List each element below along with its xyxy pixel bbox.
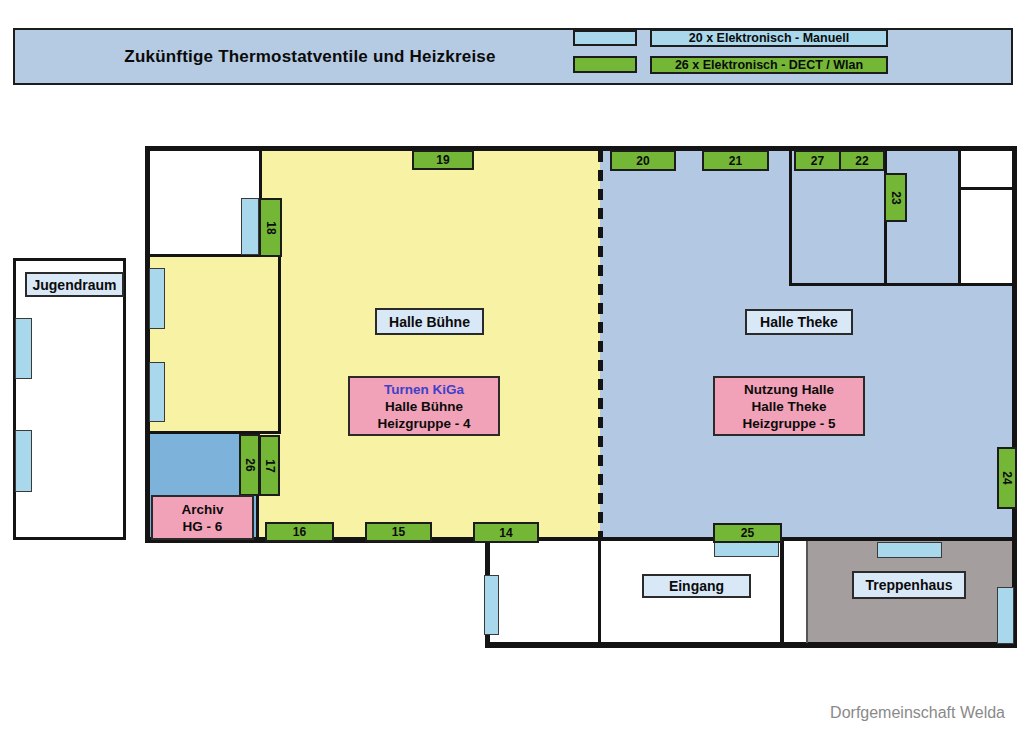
radiator [241,198,259,255]
valve-25: 25 [713,523,782,543]
wall [598,540,601,644]
wall [789,151,792,285]
valve-20: 20 [610,150,676,171]
heizgruppe-5-line1: Nutzung Halle [744,381,834,398]
valve-27: 27 [794,150,841,171]
radiator [15,318,32,379]
label-eingang: Eingang [642,574,751,598]
radiator [149,268,165,329]
heizgruppe-4-line2: Halle Bühne [385,398,463,415]
label-halle-theke: Halle Theke [745,309,853,335]
valve-15: 15 [365,522,432,542]
legend-swatch-dect-wlan [573,56,637,73]
label-treppenhaus: Treppenhaus [852,571,966,599]
page-title: Zukünftige Thermostatventile und Heizkre… [40,28,580,85]
wall [146,431,281,434]
heizgruppe-5-line2: Halle Theke [751,398,826,415]
heizgruppe-5-line3: Heizgruppe - 5 [742,415,835,432]
heizgruppe-5-box: Nutzung Halle Halle Theke Heizgruppe - 5 [713,376,865,436]
valve-19: 19 [412,150,474,170]
radiator [149,362,165,422]
heizgruppe-6-line2: HG - 6 [183,518,223,535]
wall [485,642,1017,648]
wall [145,146,150,542]
wall [789,283,1014,286]
valve-14: 14 [473,522,539,543]
valve-21: 21 [702,150,769,171]
floor-plan-page: Zukünftige Thermostatventile und Heizkre… [0,0,1024,733]
valve-23: 23 [884,173,907,222]
radiator [714,541,779,557]
wall [780,540,784,644]
legend-swatch-manuell [573,30,637,46]
radiator [997,587,1014,644]
radiator [15,430,32,492]
valve-24: 24 [997,447,1017,509]
building-jugendraum [13,258,126,540]
heizgruppe-4-box: Turnen KiGa Halle Bühne Heizgruppe - 4 [348,376,500,436]
footer-credit: Dorfgemeinschaft Welda [770,704,1005,722]
valve-26: 26 [239,434,260,496]
heating-zone-divider-dashed [598,151,603,540]
label-jugendraum: Jugendraum [25,272,124,297]
wall [806,541,808,643]
heizgruppe-4-line3: Heizgruppe - 4 [377,415,470,432]
valve-22: 22 [839,150,885,171]
legend-label-manuell: 20 x Elektronisch - Manuell [650,29,888,47]
zone-halle-theke [600,151,1012,540]
heizgruppe-6-line1: Archiv [181,501,223,518]
valve-18: 18 [259,198,282,257]
valve-16: 16 [265,522,334,542]
wall [1012,146,1017,648]
wall [958,151,961,284]
heizgruppe-6-box: Archiv HG - 6 [151,495,254,540]
rooms-top-right-white [960,151,1012,284]
legend-label-dect-wlan: 26 x Elektronisch - DECT / Wlan [650,56,888,74]
radiator [484,575,499,635]
wall [278,257,281,433]
heizgruppe-4-line1: Turnen KiGa [384,381,464,398]
label-halle-buehne: Halle Bühne [375,308,484,335]
wall [958,187,1014,190]
radiator [877,542,942,558]
valve-17: 17 [259,435,280,496]
